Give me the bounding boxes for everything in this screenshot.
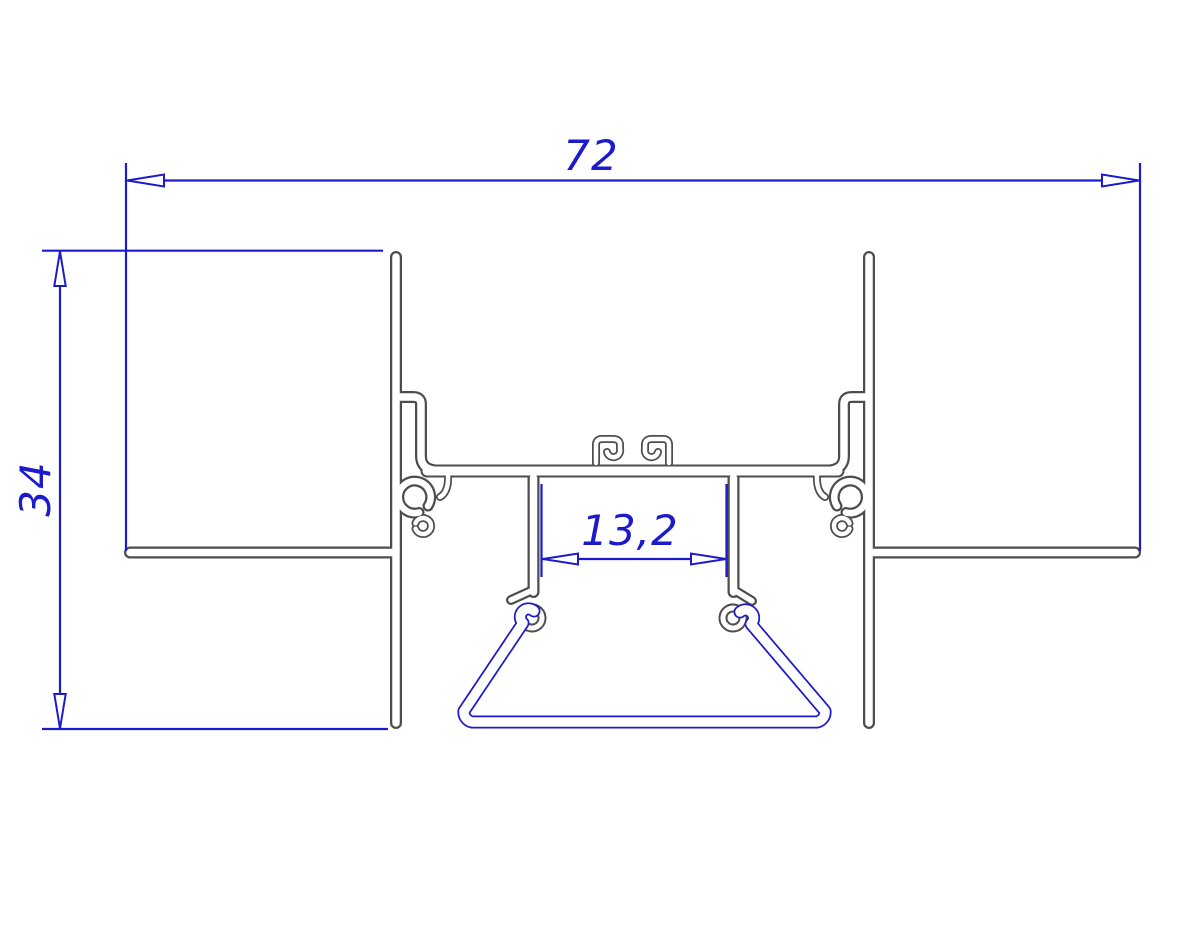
arrow-right-13-2 (691, 554, 726, 565)
arrow-right-72 (1102, 175, 1139, 187)
wall-step-branches (397, 397, 868, 470)
arrow-top-34 (54, 252, 65, 287)
spring-clip-core (464, 609, 825, 722)
dimension-height-34 (42, 251, 388, 729)
label-slot-13-2: 13,2 (581, 506, 679, 555)
label-width-72: 72 (563, 131, 618, 180)
label-height-34: 34 (11, 461, 60, 516)
arrow-bottom-34 (54, 694, 65, 729)
dimension-width-72 (126, 163, 1140, 551)
extension-lines-34 (42, 251, 388, 729)
channel-feet (511, 590, 752, 601)
arrow-left-72 (127, 175, 164, 187)
profile-outline-core (130, 257, 1135, 723)
dimensions (42, 163, 1140, 729)
arrow-left-13-2 (543, 554, 578, 565)
cad-drawing-canvas: 72 34 13,2 (0, 0, 1200, 933)
profile-technical-drawing: 72 34 13,2 (0, 0, 1200, 933)
profile-outline-dark (130, 257, 1135, 723)
channel-hooks (522, 608, 743, 628)
outer-walls (396, 257, 869, 723)
extension-lines-72 (126, 163, 1140, 551)
dimension-labels: 72 34 13,2 (11, 131, 679, 555)
